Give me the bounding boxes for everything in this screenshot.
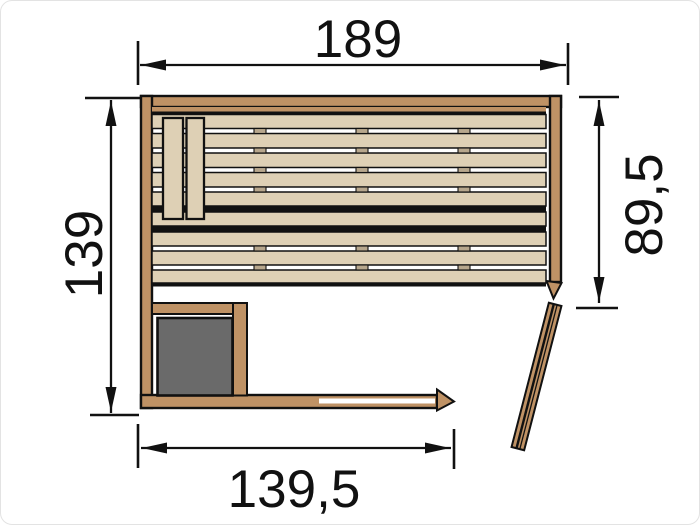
backrest-board	[187, 118, 205, 219]
dimension-bottom: 139,5	[138, 424, 454, 519]
bench-back-trim	[152, 107, 546, 112]
bench-plank	[152, 115, 546, 129]
bench-plank	[152, 212, 546, 226]
door-panel-line	[519, 305, 558, 450]
arrowhead-down	[106, 387, 117, 412]
plank-clip	[254, 168, 266, 173]
arrowhead-left	[141, 60, 166, 71]
plank-clip	[356, 168, 368, 173]
backrest-boards	[163, 118, 204, 219]
heater-area	[152, 303, 247, 396]
door-panel-line	[515, 304, 555, 449]
dimension-label-bottom: 139,5	[228, 460, 361, 519]
plank-clip	[254, 246, 266, 251]
sauna-floor-plan-drawing: 189 139 89,5 139,5	[1, 1, 700, 525]
right-wall-cut-arrow	[547, 281, 562, 299]
plank-clip	[356, 246, 368, 251]
bench-plank	[152, 232, 546, 246]
heater	[158, 318, 233, 396]
bench-plank	[152, 192, 546, 206]
plank-clip	[458, 265, 470, 270]
bottom-bench-front-stripe	[319, 399, 435, 404]
plank-clip	[254, 148, 266, 153]
dimension-label-right: 89,5	[615, 153, 674, 256]
plank-clip	[254, 265, 266, 270]
dimension-label-top: 189	[314, 10, 402, 69]
plank-clip	[458, 168, 470, 173]
bench-plank	[152, 153, 546, 168]
dimension-right: 89,5	[576, 97, 674, 308]
plank-clip	[356, 265, 368, 270]
plank-clip	[458, 246, 470, 251]
bench-front-edge	[152, 226, 546, 232]
left-wall	[141, 96, 152, 408]
bench-bottom-edge	[152, 283, 546, 287]
plank-clip	[458, 129, 470, 134]
bench-plank	[152, 251, 546, 265]
arrowhead-up	[594, 101, 605, 126]
door-leaf	[512, 303, 562, 451]
arrowhead-left	[142, 443, 167, 454]
arrowhead-down	[594, 277, 605, 302]
bench-front-edge	[152, 206, 546, 212]
dimension-top: 189	[138, 10, 568, 85]
plank-clip	[356, 129, 368, 134]
arrowhead-right	[425, 443, 450, 454]
plank-clip	[254, 129, 266, 134]
arrowhead-up	[106, 101, 117, 126]
top-wall	[141, 96, 561, 107]
plank-clip	[458, 148, 470, 153]
heater-guard-rail-vertical	[233, 303, 247, 396]
bottom-wall-cut-arrow	[437, 390, 454, 411]
door-panel	[512, 303, 562, 451]
diagram-canvas: 189 139 89,5 139,5	[0, 0, 700, 525]
bench-plank	[152, 173, 546, 188]
heater-guard-rail-horizontal	[152, 303, 244, 314]
backrest-board	[163, 118, 183, 219]
bench-plank	[152, 134, 546, 149]
plank-clip	[458, 187, 470, 192]
dimension-label-left: 139	[55, 210, 114, 298]
right-wall	[550, 96, 561, 282]
arrowhead-right	[540, 60, 565, 71]
plank-clip	[356, 148, 368, 153]
bench-planks	[152, 107, 546, 287]
plank-clip	[356, 187, 368, 192]
plank-clip	[254, 187, 266, 192]
dimension-left: 139	[55, 98, 142, 415]
bench-plank	[152, 270, 546, 283]
